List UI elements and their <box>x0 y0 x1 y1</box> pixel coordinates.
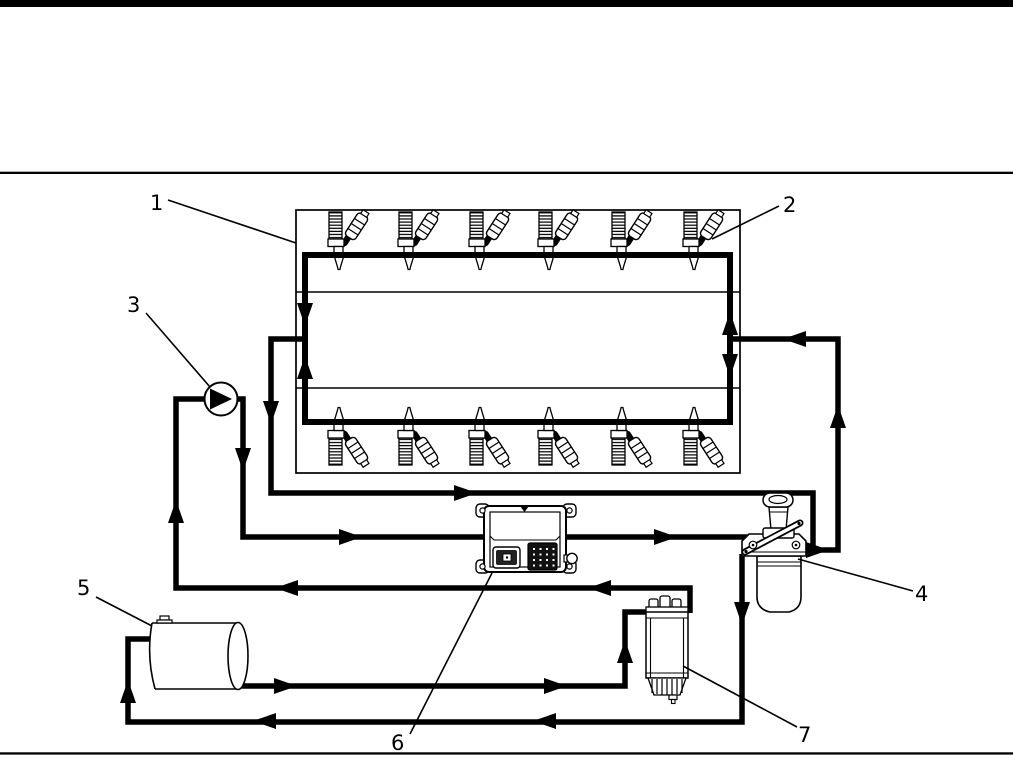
flow-arrow-right <box>454 485 477 501</box>
fuel-tank <box>150 616 248 690</box>
callout-label-5: 5 <box>77 576 90 600</box>
engine-block <box>296 210 740 473</box>
priming-pump-shaft <box>769 507 788 530</box>
fuel-system-diagram: 1 2 3 4 5 6 7 <box>0 0 1013 761</box>
ecm-side-clip <box>567 553 577 563</box>
callout-label-3: 3 <box>127 293 140 317</box>
header-rule <box>0 172 1013 174</box>
footer-rule <box>0 752 1013 754</box>
secondary-fuel-filter-priming-pump <box>742 493 806 612</box>
callout-line-6 <box>410 573 492 734</box>
callout-line-5 <box>96 597 152 626</box>
flow-arrow-up <box>830 405 846 428</box>
flow-arrow-right <box>654 529 677 545</box>
flow-arrow-left <box>275 580 298 596</box>
top-border-bar <box>0 0 1013 7</box>
callout-label-1: 1 <box>150 191 163 215</box>
flow-arrow-down <box>734 602 750 625</box>
flow-arrow-up <box>168 500 184 523</box>
flow-arrow-down <box>235 448 251 471</box>
flow-arrow-right <box>339 529 362 545</box>
callout-label-6: 6 <box>391 731 404 755</box>
flow-arrow-up <box>617 640 633 663</box>
engine-control-module <box>476 504 577 573</box>
flow-arrow-left <box>253 713 276 729</box>
flow-arrow-right <box>274 678 297 694</box>
flow-arrow-left <box>588 580 611 596</box>
callout-label-4: 4 <box>915 582 928 606</box>
flow-arrow-left <box>533 713 556 729</box>
callout-label-2: 2 <box>783 193 796 217</box>
flow-arrow-left <box>783 331 806 347</box>
tank-suction-line <box>240 612 655 686</box>
flow-arrow-up <box>120 680 136 703</box>
filter-canister <box>757 556 801 612</box>
primary-fuel-filter-water-separator <box>646 596 688 704</box>
callout-line-1 <box>168 200 296 243</box>
callout-label-7: 7 <box>798 723 811 747</box>
flow-arrow-right <box>544 678 567 694</box>
callout-line-4 <box>798 559 913 591</box>
callout-line-3 <box>146 313 210 387</box>
flow-arrow-down <box>263 401 279 424</box>
drain-valve <box>669 695 677 700</box>
manual-page: 1 2 3 4 5 6 7 <box>0 0 1013 761</box>
flow-arrow-right <box>806 542 829 558</box>
